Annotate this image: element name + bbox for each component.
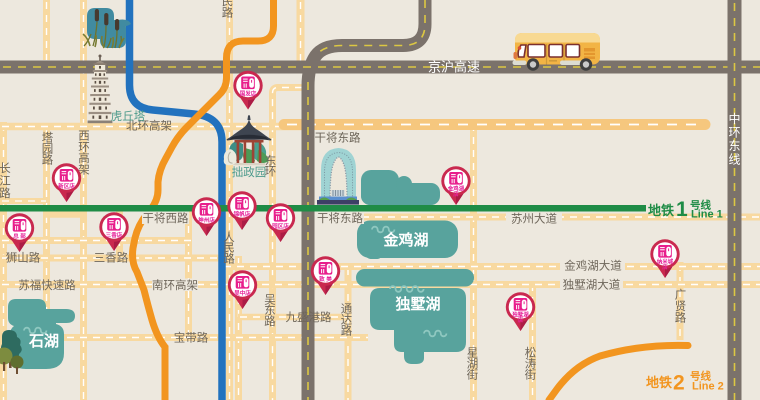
svg-text:中环东线: 中环东线: [728, 111, 740, 167]
svg-text:松涛街: 松涛街: [525, 346, 537, 382]
svg-text:苏福快速路: 苏福快速路: [18, 278, 76, 292]
svg-text:民路: 民路: [222, 0, 234, 19]
svg-text:干将西路: 干将西路: [143, 211, 189, 225]
svg-text:店: 店: [518, 316, 524, 324]
svg-text:金鸡湖大道: 金鸡湖大道: [564, 259, 622, 273]
svg-text:南环高架: 南环高架: [152, 278, 198, 292]
svg-text:Line 1: Line 1: [691, 209, 723, 221]
svg-text:石湖: 石湖: [28, 333, 59, 350]
svg-text:三香店: 三香店: [106, 231, 123, 239]
svg-text:金鸡湖: 金鸡湖: [382, 231, 428, 249]
svg-text:通达路: 通达路: [341, 303, 353, 338]
svg-text:苏州大道: 苏州大道: [511, 212, 557, 226]
svg-text:塔园路: 塔园路: [42, 132, 54, 167]
svg-text:京沪高速: 京沪高速: [428, 60, 480, 75]
svg-text:狮山路: 狮山路: [6, 251, 41, 265]
svg-text:店: 店: [662, 263, 668, 271]
svg-text:九盛港路: 九盛港路: [286, 310, 332, 324]
svg-text:地铁: 地铁: [648, 203, 674, 218]
svg-text:国发店: 国发店: [240, 89, 257, 97]
svg-text:致 美: 致 美: [319, 275, 332, 283]
svg-text:虎丘塔: 虎丘塔: [111, 110, 146, 123]
svg-text:吴东路: 吴东路: [264, 294, 276, 328]
svg-text:神州店: 神州店: [198, 216, 215, 224]
svg-text:园区店: 园区店: [272, 222, 289, 230]
svg-text:干将东路: 干将东路: [315, 131, 361, 145]
svg-text:三香路: 三香路: [94, 251, 129, 265]
svg-text:西环高架: 西环高架: [78, 131, 90, 177]
svg-text:独墅湖: 独墅湖: [395, 295, 440, 313]
svg-text:地铁: 地铁: [646, 375, 672, 390]
svg-text:吴中店: 吴中店: [234, 289, 251, 297]
svg-text:新区店: 新区店: [58, 182, 75, 190]
svg-text:人民路: 人民路: [223, 231, 235, 265]
svg-text:东环: 东环: [265, 155, 277, 179]
svg-text:广贤路: 广贤路: [675, 289, 687, 325]
svg-text:1: 1: [676, 198, 688, 221]
svg-text:2: 2: [673, 372, 685, 395]
svg-text:宝带路: 宝带路: [174, 331, 209, 345]
svg-text:长江路: 长江路: [0, 162, 11, 200]
svg-text:Line 2: Line 2: [692, 381, 724, 393]
svg-text:店: 店: [453, 190, 459, 198]
svg-text:总 部: 总 部: [13, 232, 26, 240]
svg-text:独墅湖大道: 独墅湖大道: [563, 278, 621, 292]
svg-text:锦帆店: 锦帆店: [234, 210, 251, 218]
svg-text:干将东路: 干将东路: [317, 211, 363, 225]
svg-text:拙政园: 拙政园: [232, 165, 267, 179]
svg-text:星湖街: 星湖街: [467, 347, 479, 382]
